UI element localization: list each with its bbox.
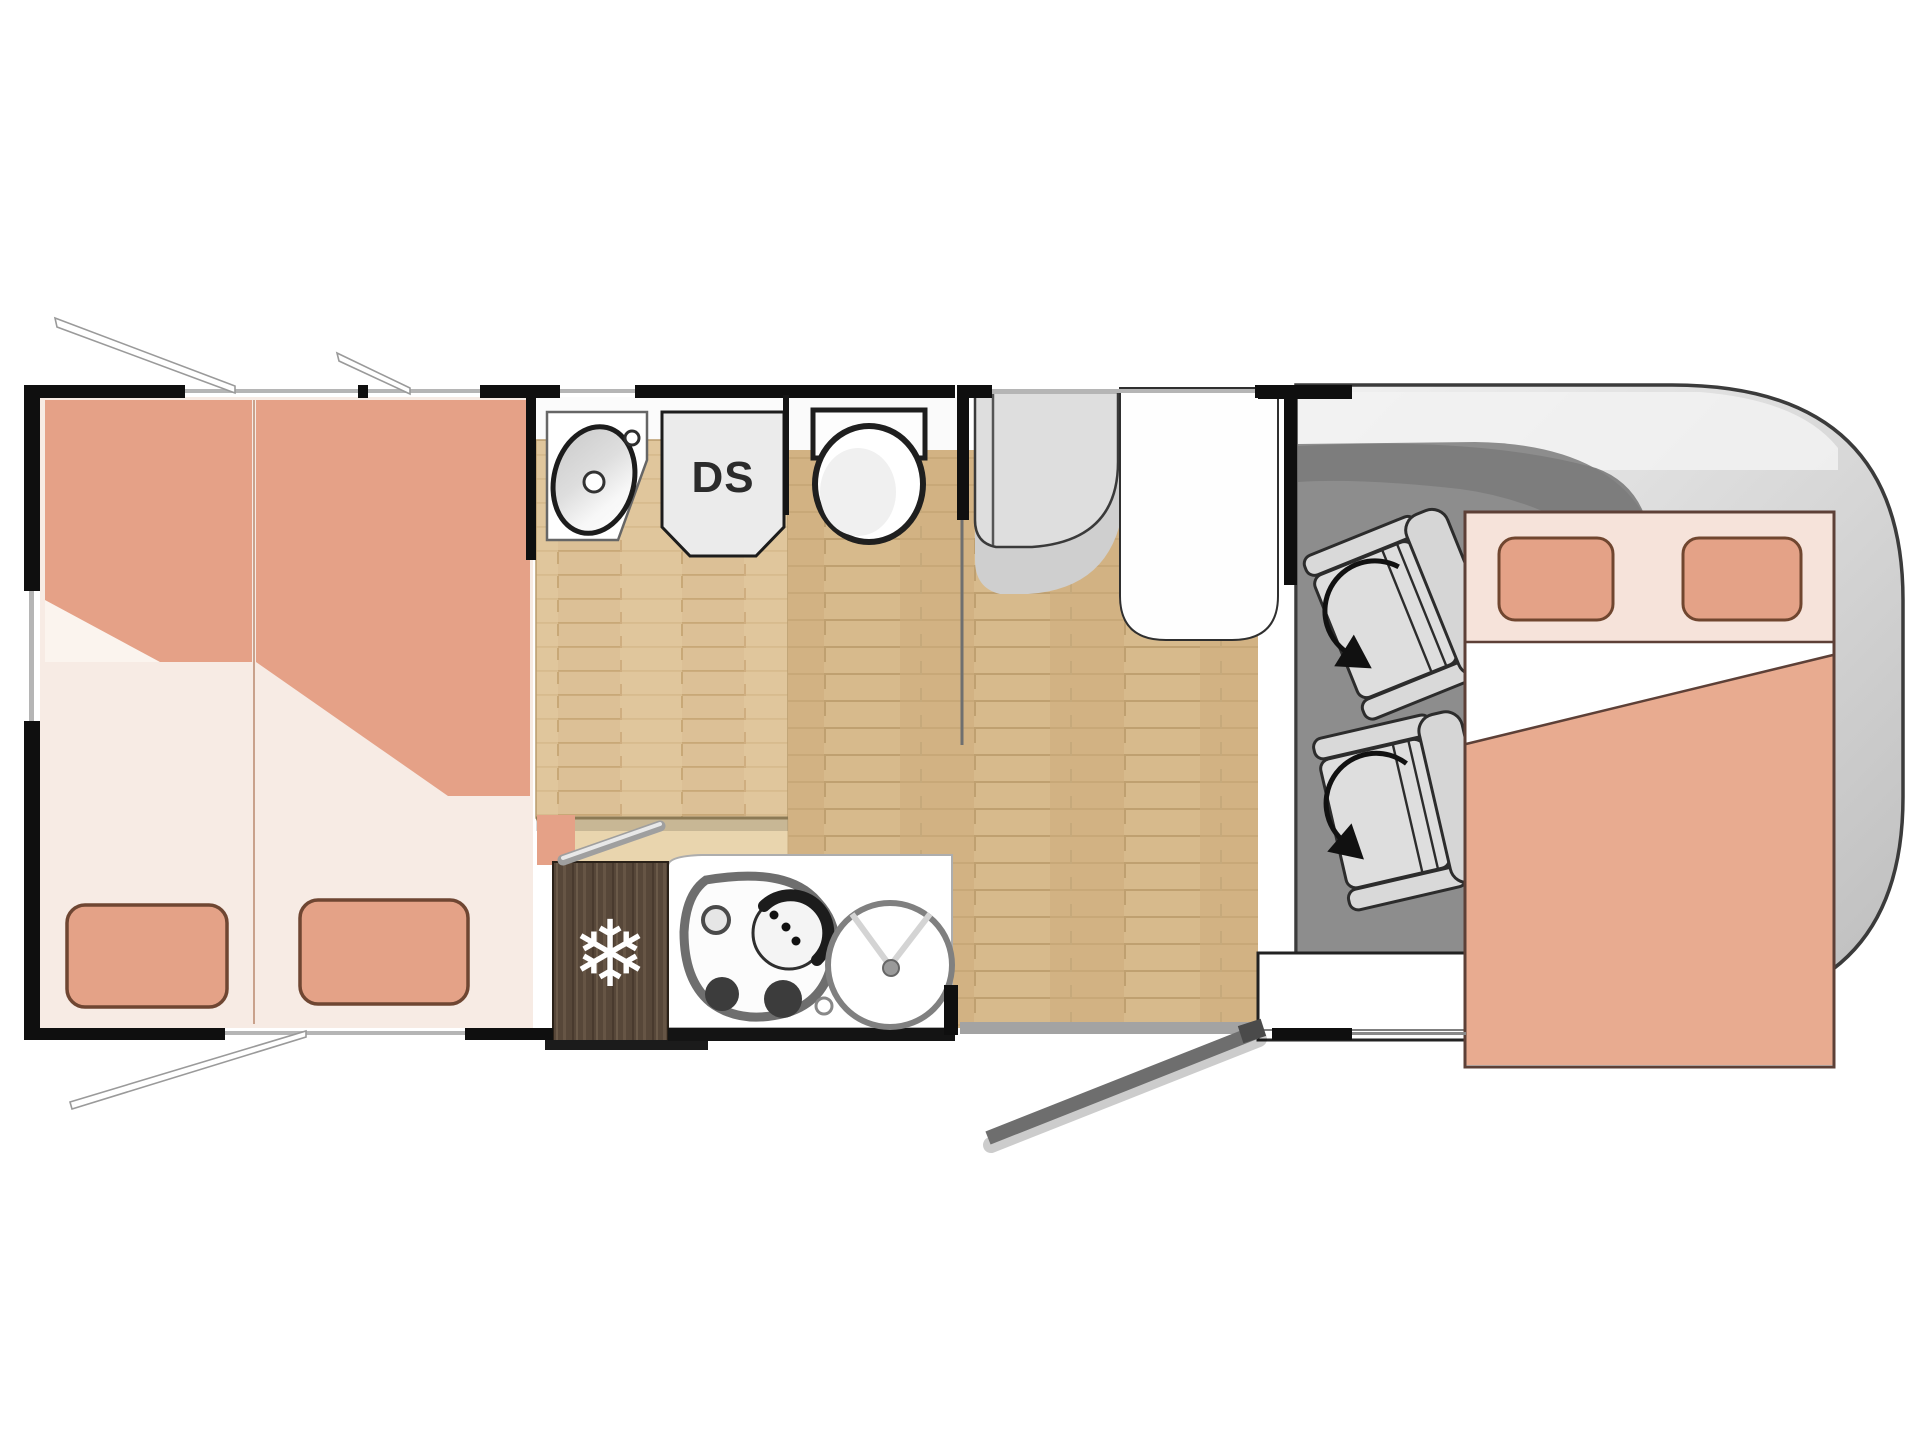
washbasin-faucet xyxy=(625,431,639,445)
entry-door-open xyxy=(988,1019,1266,1145)
shower-label: DS xyxy=(691,453,754,502)
wall-bed-washroom xyxy=(526,397,536,560)
front-bed-pillow-left xyxy=(1499,538,1613,620)
hob-dot xyxy=(782,923,791,932)
fridge-base-shadow xyxy=(545,1040,708,1050)
wall-washroom-right xyxy=(957,385,969,520)
front-bed-pillow-right xyxy=(1683,538,1801,620)
hob-dot xyxy=(792,937,801,946)
washroom: DS xyxy=(542,410,925,556)
hob-burner-bottom-right xyxy=(764,980,802,1018)
left-bed-pillow xyxy=(67,905,227,1007)
floor-plan-canvas: DS ❄ xyxy=(0,0,1920,1440)
window-flap-top-mid xyxy=(337,353,410,394)
hob-burner-bottom-left xyxy=(705,977,739,1011)
window-flap-bottom-left xyxy=(70,1031,306,1109)
fridge-snowflake-icon: ❄ xyxy=(571,904,648,1006)
drop-down-bed xyxy=(1465,512,1834,1067)
window-flap-top-left xyxy=(55,318,235,393)
sink-drain xyxy=(883,960,899,976)
wall-shower-right xyxy=(783,395,789,515)
entry-step xyxy=(1258,953,1468,1040)
wall-cab-stem xyxy=(1284,399,1297,585)
hob-dot xyxy=(770,911,779,920)
counter-front-edge xyxy=(668,1028,955,1041)
right-bed-pillow xyxy=(300,900,468,1004)
washbasin-drain xyxy=(584,472,604,492)
floor-plan-drawing: DS ❄ xyxy=(0,0,1920,1440)
toilet-bowl-shade xyxy=(820,448,896,536)
rear-twin-beds xyxy=(40,397,575,1028)
sink-tap-base xyxy=(816,998,832,1014)
wall-cab-top-bar xyxy=(1258,385,1352,399)
wardrobe-cabinet xyxy=(1120,388,1278,640)
wardrobe-door-panel xyxy=(975,392,1118,547)
hob-burner-small xyxy=(703,907,729,933)
entry-floor-edge xyxy=(960,1022,1272,1034)
wall-kitchen-end xyxy=(944,985,958,1035)
